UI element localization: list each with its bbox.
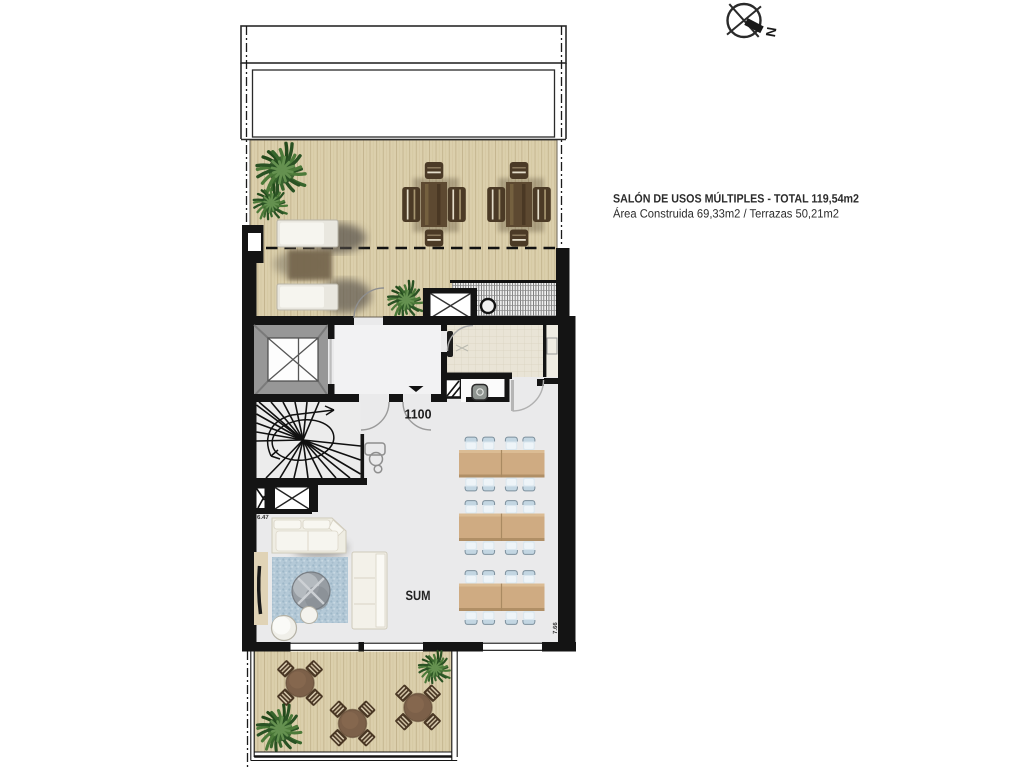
svg-text:7.66: 7.66 (552, 622, 559, 634)
svg-text:6.47: 6.47 (257, 514, 269, 521)
svg-text:SALÓN DE USOS MÚLTIPLES - TOTA: SALÓN DE USOS MÚLTIPLES - TOTAL 119,54m2 (613, 192, 859, 206)
svg-text:Área Construida 69,33m2 / Terr: Área Construida 69,33m2 / Terrazas 50,21… (613, 207, 839, 221)
svg-text:N: N (763, 26, 779, 38)
svg-text:SUM: SUM (406, 588, 431, 603)
svg-text:1100: 1100 (405, 407, 432, 422)
